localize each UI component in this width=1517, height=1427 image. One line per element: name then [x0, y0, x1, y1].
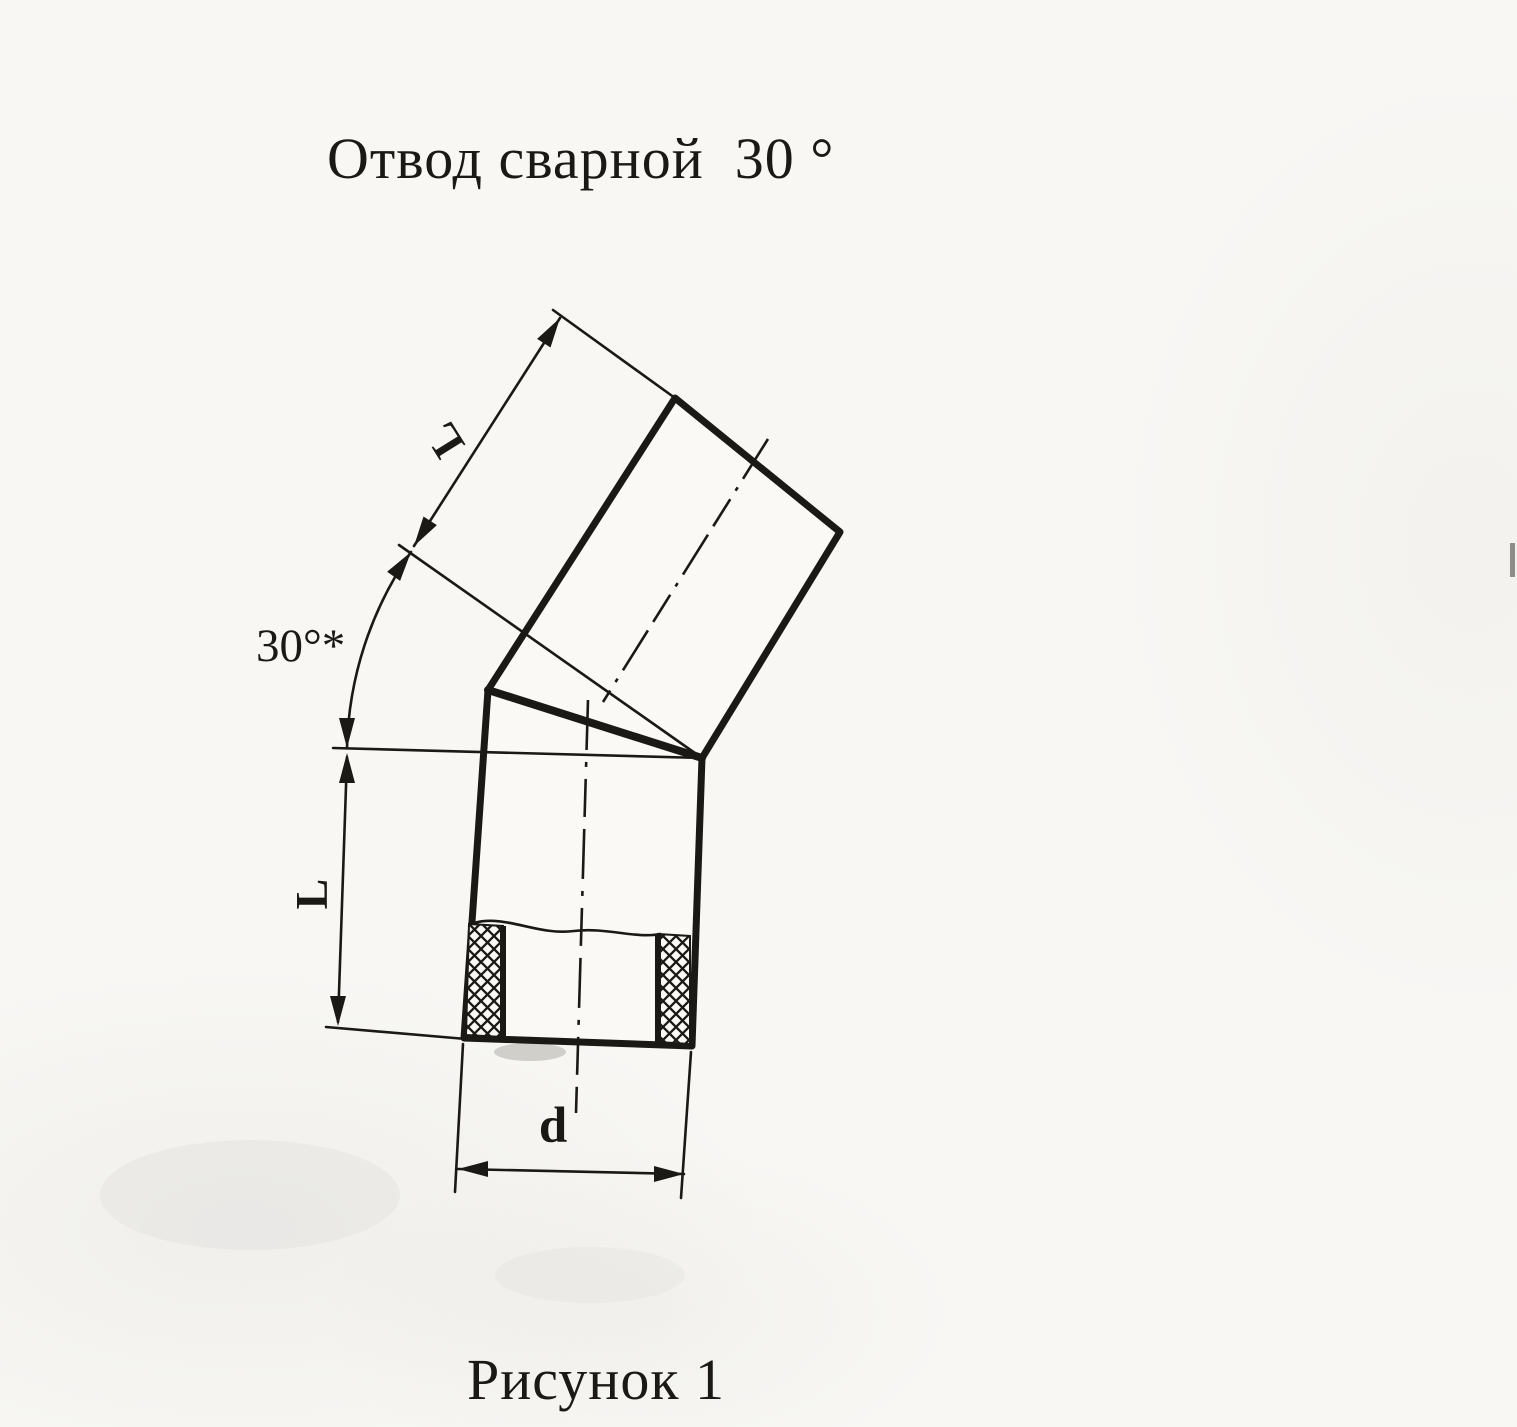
arrowhead	[339, 753, 355, 783]
figure-caption: Рисунок 1	[467, 1346, 725, 1413]
extension-line-right	[681, 1052, 691, 1198]
arrowhead	[339, 718, 355, 748]
scan-smudge	[495, 1247, 685, 1303]
arrowhead	[458, 1161, 488, 1177]
dimension-lower-length: L	[286, 753, 466, 1039]
label-diameter: d	[539, 1098, 567, 1154]
scan-smudge	[100, 1140, 400, 1250]
arrowhead	[654, 1166, 684, 1182]
arrowhead	[387, 552, 411, 581]
scanned-drawing-page: Отвод сварной 30 °	[0, 0, 1517, 1427]
dimension-line-d	[458, 1169, 684, 1174]
scan-smudge	[494, 1043, 566, 1061]
label-lower-L: L	[286, 879, 337, 910]
extension-line-bottom-face	[326, 1027, 466, 1039]
wall-section-left	[466, 924, 503, 1037]
label-upper-L: L	[415, 414, 475, 467]
wall-section-right	[658, 934, 690, 1044]
arrowhead	[537, 318, 560, 348]
dimension-line-lower-L	[338, 757, 347, 1022]
extension-line-top-face	[553, 310, 675, 398]
dimension-diameter: d	[455, 1044, 691, 1198]
scan-artifact	[1510, 543, 1515, 577]
label-angle: 30°*	[256, 620, 345, 672]
angle-arc	[347, 552, 411, 748]
arrowhead	[414, 517, 437, 547]
figure-drawing: L 30°* L d	[0, 0, 1517, 1427]
arrowhead	[330, 996, 346, 1026]
